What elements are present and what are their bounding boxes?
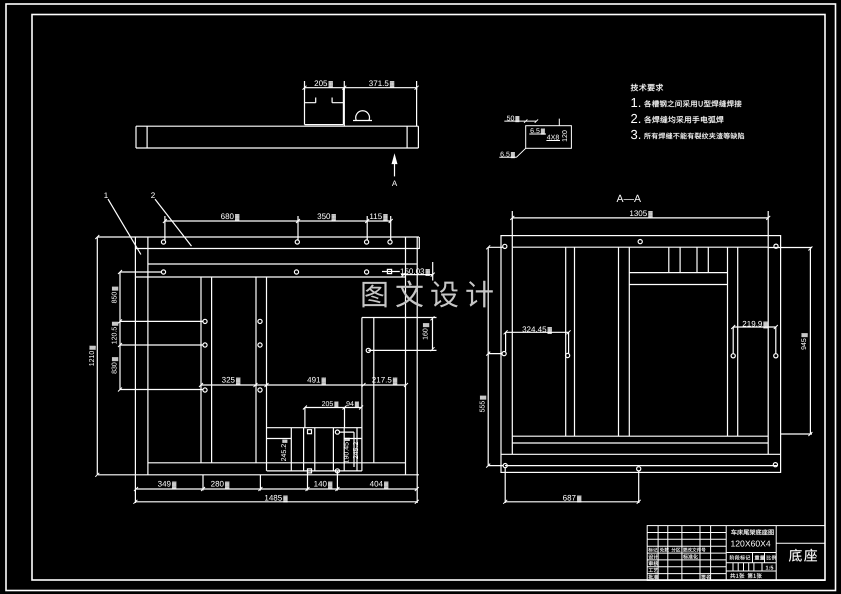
svg-text:945▓: 945▓ [801,332,808,350]
svg-text:245.2: 245.2 [353,442,360,460]
svg-text:2: 2 [151,191,156,200]
svg-text:6.5▓: 6.5▓ [500,151,516,158]
svg-text:94▓: 94▓ [346,401,360,408]
svg-text:4X8: 4X8 [547,135,560,142]
svg-text:160▓: 160▓ [423,322,430,340]
svg-text:245.2▓: 245.2▓ [281,439,288,462]
svg-text:A—A: A—A [617,193,642,205]
svg-text:1:5: 1:5 [766,565,774,571]
svg-text:555▓: 555▓ [480,395,487,413]
svg-text:120.5▓: 120.5▓ [112,321,119,345]
svg-text:A: A [392,179,398,188]
svg-text:2.: 2. [631,111,642,126]
svg-text:50▓: 50▓ [507,116,521,123]
svg-text:6.5▓: 6.5▓ [530,128,546,135]
svg-text:1: 1 [104,191,109,200]
svg-text:1210▓: 1210▓ [89,345,96,367]
svg-text:205▓: 205▓ [322,401,340,408]
svg-text:850▓: 850▓ [112,286,119,304]
svg-text:3.: 3. [631,127,642,142]
svg-text:120: 120 [562,130,569,142]
svg-text:830▓: 830▓ [112,356,119,374]
svg-text:1.: 1. [631,95,642,110]
svg-text:120X60X4: 120X60X4 [731,538,771,548]
svg-text:190.45▓: 190.45▓ [344,437,351,463]
